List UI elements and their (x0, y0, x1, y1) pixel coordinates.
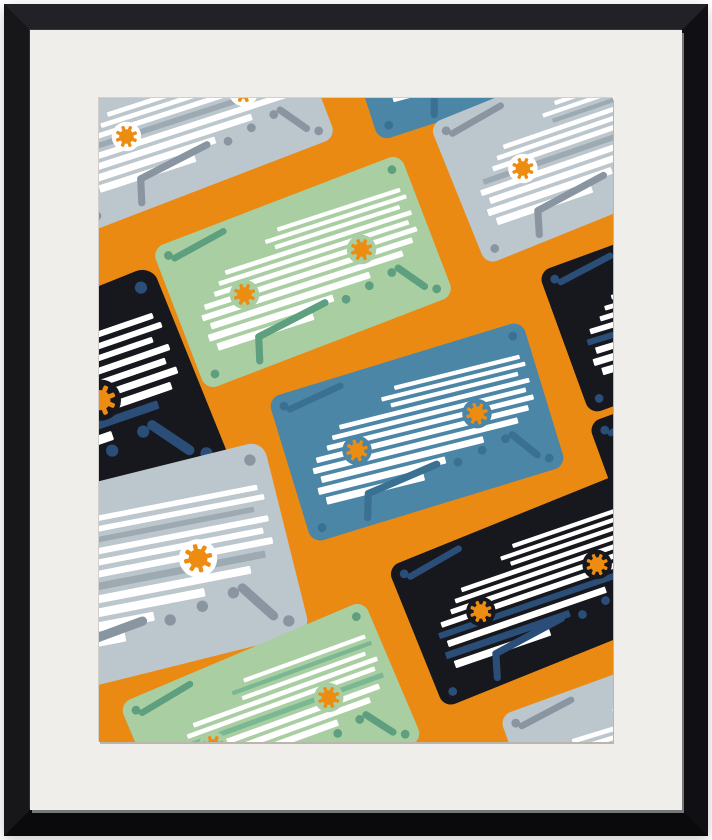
base-trapezoid-outline (593, 734, 613, 742)
hub-cog-icon (199, 732, 228, 742)
cassette-gray-2 (429, 98, 613, 265)
base-trapezoid-outline (99, 416, 195, 559)
base-trapezoid-outline (483, 576, 613, 678)
hub-cog-icon (509, 154, 538, 183)
label-accent-dash (558, 256, 612, 282)
picture-frame (4, 4, 708, 836)
tape-hub-right (225, 98, 263, 111)
hub-disc (462, 592, 500, 630)
cassette-body (99, 265, 231, 602)
corner-screw-icon (282, 614, 296, 628)
label-stripes (99, 295, 209, 564)
cassette-svg (538, 181, 613, 415)
hub-disc (339, 432, 376, 469)
cassette-pattern-artwork (99, 98, 613, 742)
corner-screw-icon (383, 120, 394, 131)
cassette-body (538, 181, 613, 415)
label-accent-dash (408, 549, 462, 577)
base-trapezoid-outline (423, 98, 606, 114)
cassette-svg (99, 98, 336, 233)
corner-screw-icon (594, 393, 605, 404)
trapezoid-dot (500, 433, 511, 444)
hub-disc (99, 373, 127, 427)
trapezoid-dot (364, 280, 375, 291)
corner-screw-icon (431, 283, 442, 294)
tape-hub-left (611, 301, 613, 339)
trapezoid-dot (386, 267, 397, 278)
cassette-black-2 (538, 181, 613, 415)
trapezoid-dot (332, 728, 343, 739)
label-accent-dash (139, 684, 193, 713)
label-stripes (414, 490, 613, 682)
hub-disc (611, 301, 613, 339)
trapezoid-dot (354, 714, 365, 725)
tape-hub-right (343, 231, 381, 269)
hub-disc (459, 395, 496, 432)
trapezoid-dot (104, 443, 120, 459)
corner-screw-icon (133, 280, 149, 296)
cassette-black-3 (387, 468, 613, 709)
cassette-gray-4 (499, 625, 613, 742)
cassette-body (99, 440, 311, 715)
hub-disc (309, 678, 348, 717)
label-stripes (99, 468, 293, 683)
label-accent-dash (172, 231, 226, 258)
corner-screw-icon (99, 210, 103, 221)
corner-screw-icon (549, 274, 560, 285)
cassette-svg (268, 320, 567, 543)
cassette-body (588, 332, 613, 566)
corner-screw-icon (507, 331, 518, 342)
corner-screw-icon (130, 704, 141, 715)
label-stripes (456, 98, 613, 238)
label-stripes (99, 98, 321, 206)
cassette-svg (99, 265, 231, 602)
tape-hub-left (504, 149, 542, 187)
hub-cog-icon (229, 98, 257, 106)
corner-screw-icon (440, 125, 451, 136)
product-photo-page (0, 0, 712, 840)
corner-screw-icon (544, 453, 555, 464)
base-trapezoid-outline (525, 133, 613, 235)
cassette-body (429, 98, 613, 265)
hub-cog-icon (583, 550, 612, 579)
cassette-blue-1 (268, 320, 567, 543)
tape-hub-left (462, 592, 500, 630)
trapezoid-dot (196, 599, 210, 613)
cassette-black-1 (99, 265, 231, 602)
trapezoid-dot (340, 294, 351, 305)
hub-cog-icon (230, 280, 258, 308)
corner-screw-icon (199, 445, 215, 461)
label-stripes (293, 342, 552, 518)
trapezoid-dot (577, 609, 588, 620)
corner-screw-icon (399, 728, 410, 739)
hub-disc (504, 149, 542, 187)
cassette-green-1 (152, 153, 455, 390)
trapezoid-dot (600, 595, 611, 606)
label-accent-dash (450, 106, 504, 134)
hub-disc (107, 117, 145, 155)
label-accent-dash (288, 386, 343, 409)
corner-screw-icon (278, 401, 289, 412)
tape-hub-left (339, 432, 376, 469)
trapezoid-dot (246, 122, 257, 133)
corner-screw-icon (313, 125, 324, 136)
base-trapezoid-outline (357, 429, 540, 517)
trapezoid-dot (268, 109, 279, 120)
label-accent-dash (99, 98, 108, 100)
cassette-body (99, 98, 336, 233)
label-accent-dash (608, 407, 613, 433)
cassette-gray-1 (99, 98, 336, 233)
base-trapezoid-outline (128, 104, 310, 203)
cassette-body (152, 153, 455, 390)
corner-screw-icon (398, 568, 409, 579)
trapezoid-dot (222, 136, 233, 147)
hub-cog-icon (181, 541, 216, 576)
trapezoid-dot (163, 613, 177, 627)
cassette-svg (499, 625, 613, 742)
corner-screw-icon (386, 164, 397, 175)
corner-screw-icon (209, 368, 220, 379)
corner-screw-icon (489, 243, 500, 254)
tape-hub-left (225, 275, 263, 313)
tape-hub-right (578, 545, 613, 583)
cassette-svg (99, 440, 311, 715)
cassette-svg (152, 153, 455, 390)
label-accent-dash (519, 700, 573, 726)
cassette-svg (119, 600, 423, 742)
label-stripes (564, 203, 613, 389)
tape-hub-left (194, 727, 233, 742)
trapezoid-dot (477, 445, 488, 456)
hub-disc (194, 727, 233, 742)
hub-disc (175, 535, 221, 581)
base-trapezoid-outline (246, 262, 428, 361)
corner-screw-icon (163, 250, 174, 261)
corner-screw-icon (599, 425, 610, 436)
corner-screw-icon (510, 718, 521, 729)
base-trapezoid-outline (216, 708, 397, 742)
label-stripes (525, 647, 613, 742)
trapezoid-dot (227, 586, 241, 600)
hub-cog-icon (463, 400, 491, 428)
cassette-gray-3 (99, 440, 311, 715)
hub-cog-icon (99, 380, 120, 420)
tape-hub-right (309, 678, 348, 717)
tape-hub-right (99, 373, 127, 427)
hub-cog-icon (112, 122, 140, 150)
hub-disc (225, 98, 263, 111)
corner-screw-icon (351, 611, 362, 622)
hub-cog-icon (347, 235, 375, 263)
label-stripes (178, 175, 439, 364)
cassette-black-4 (588, 332, 613, 566)
tape-hub-right (459, 395, 496, 432)
tape-hub-left (107, 117, 145, 155)
cassette-blue-0 (332, 98, 613, 141)
cassette-body (387, 468, 613, 709)
hub-disc (343, 231, 381, 269)
cassette-green-2 (119, 600, 423, 742)
hub-cog-icon (467, 597, 496, 626)
cassette-svg (588, 332, 613, 566)
hub-cog-icon (343, 437, 371, 465)
trapezoid-dot (135, 424, 151, 440)
cassette-body (268, 320, 567, 543)
hub-disc (578, 545, 613, 583)
mat-board (30, 30, 682, 810)
cassette-svg (429, 98, 613, 265)
cassette-svg (387, 468, 613, 709)
corner-screw-icon (317, 522, 328, 533)
corner-screw-icon (243, 453, 257, 467)
cassette-body (499, 625, 613, 742)
hub-cog-icon (314, 683, 343, 712)
cassette-body (119, 600, 423, 742)
hub-disc (225, 275, 263, 313)
cassette-body (332, 98, 613, 141)
corner-screw-icon (447, 686, 458, 697)
trapezoid-dot (453, 457, 464, 468)
cassette-svg (332, 98, 613, 141)
tape-hub-right (175, 535, 221, 581)
base-trapezoid-outline (99, 582, 277, 685)
label-stripes (145, 622, 406, 742)
label-stripes (358, 98, 613, 115)
